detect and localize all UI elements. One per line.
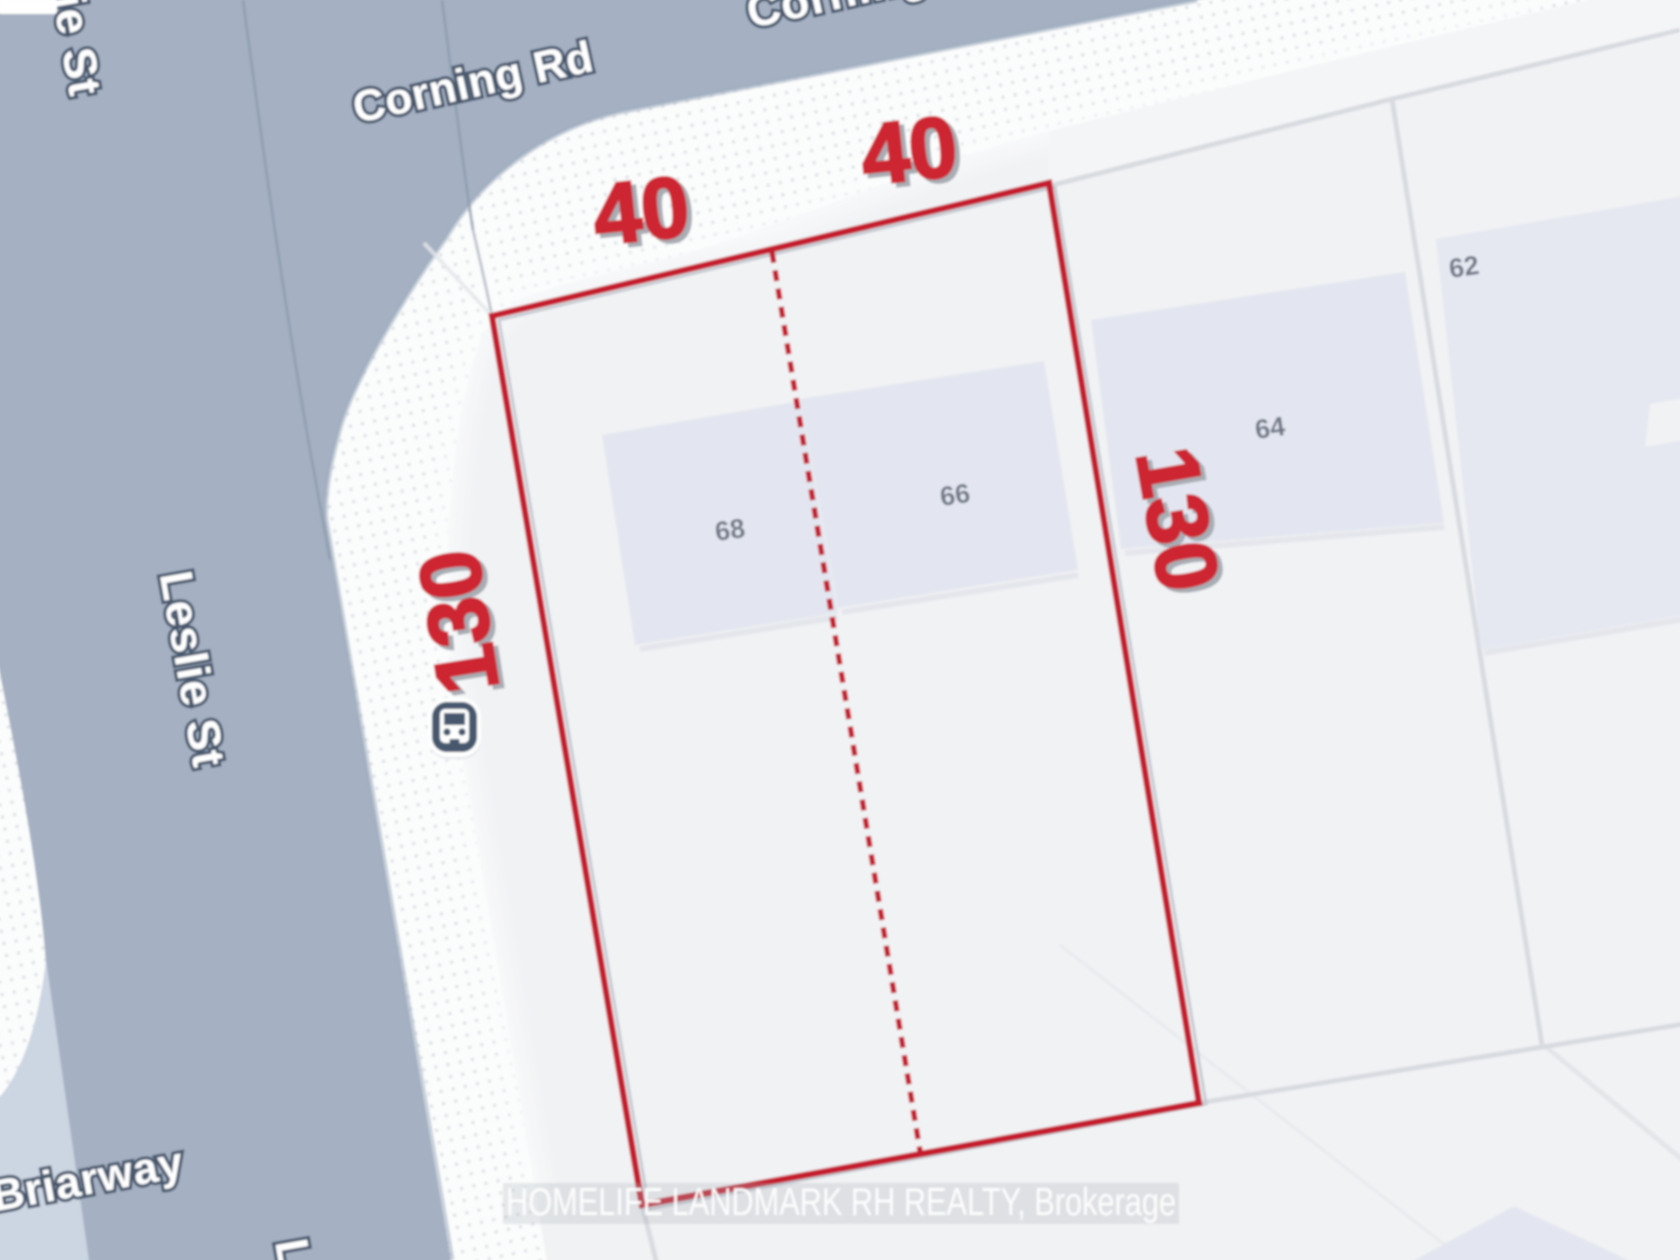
svg-text:64: 64 — [1253, 411, 1287, 445]
svg-text:66: 66 — [938, 478, 972, 512]
svg-text:HOMELIFE LANDMARK RH REALTY, B: HOMELIFE LANDMARK RH REALTY, Brokerage — [506, 1181, 1176, 1224]
svg-text:40: 40 — [589, 158, 694, 263]
svg-text:68: 68 — [713, 513, 747, 547]
svg-text:62: 62 — [1447, 250, 1481, 284]
svg-text:40: 40 — [857, 98, 962, 203]
